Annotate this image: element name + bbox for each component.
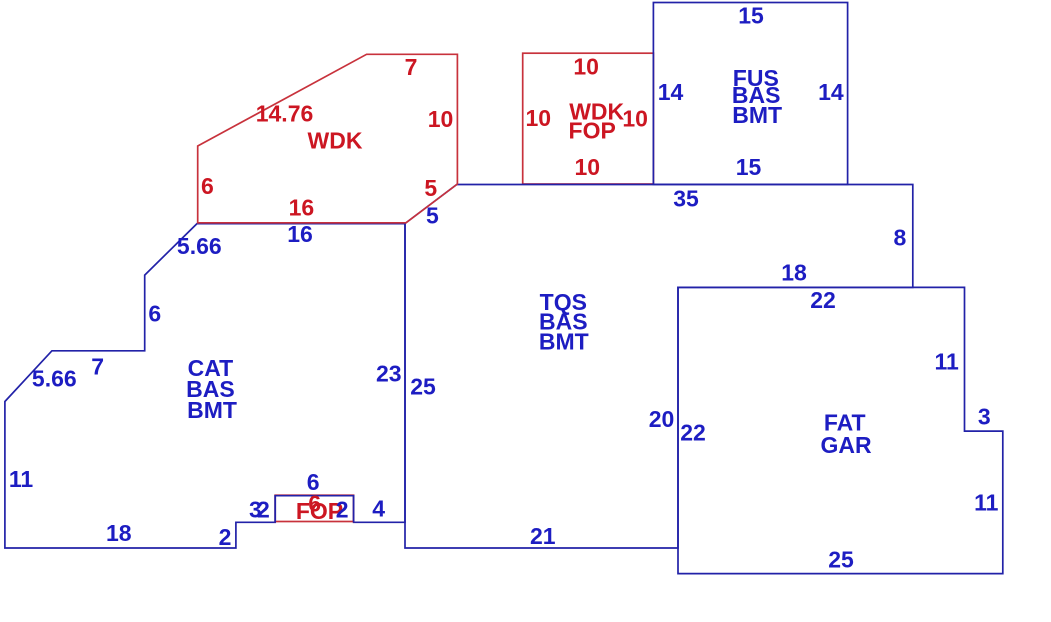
svg-text:15: 15 (738, 3, 764, 29)
svg-text:11: 11 (935, 348, 960, 374)
svg-text:4: 4 (372, 495, 385, 521)
svg-text:7: 7 (91, 353, 104, 379)
svg-text:15: 15 (736, 154, 762, 180)
svg-text:10: 10 (526, 105, 552, 131)
svg-text:2: 2 (257, 496, 270, 522)
svg-text:25: 25 (828, 546, 854, 572)
svg-text:6: 6 (201, 173, 214, 199)
svg-text:8: 8 (894, 224, 907, 250)
svg-text:10: 10 (575, 154, 601, 180)
svg-text:BMT: BMT (732, 102, 782, 128)
svg-text:18: 18 (781, 259, 807, 285)
svg-text:BMT: BMT (539, 329, 589, 355)
svg-text:35: 35 (673, 186, 699, 212)
svg-text:23: 23 (376, 360, 402, 386)
svg-text:BMT: BMT (187, 397, 237, 423)
svg-text:21: 21 (530, 523, 556, 549)
svg-text:14: 14 (658, 79, 684, 105)
svg-text:7: 7 (405, 54, 418, 80)
svg-text:18: 18 (106, 520, 132, 546)
svg-text:14: 14 (818, 79, 844, 105)
svg-text:6: 6 (148, 300, 161, 326)
svg-text:FOP: FOP (569, 118, 616, 144)
svg-text:3: 3 (978, 404, 991, 430)
svg-text:16: 16 (287, 221, 313, 247)
svg-text:25: 25 (410, 373, 436, 399)
svg-text:22: 22 (680, 420, 706, 446)
svg-text:5.66: 5.66 (32, 366, 77, 392)
svg-text:10: 10 (573, 54, 599, 80)
svg-text:20: 20 (649, 406, 675, 432)
svg-text:16: 16 (289, 195, 315, 221)
svg-text:2: 2 (336, 496, 349, 522)
svg-text:GAR: GAR (821, 432, 873, 458)
svg-text:2: 2 (219, 524, 232, 550)
svg-text:10: 10 (428, 106, 454, 132)
svg-text:10: 10 (622, 106, 648, 132)
svg-text:22: 22 (810, 287, 836, 313)
svg-text:14.76: 14.76 (256, 101, 314, 127)
svg-text:5.66: 5.66 (177, 233, 222, 259)
svg-text:WDK: WDK (308, 128, 363, 154)
svg-text:5: 5 (426, 203, 439, 229)
svg-text:11: 11 (974, 490, 999, 516)
svg-text:5: 5 (424, 175, 437, 201)
svg-text:11: 11 (9, 466, 34, 492)
